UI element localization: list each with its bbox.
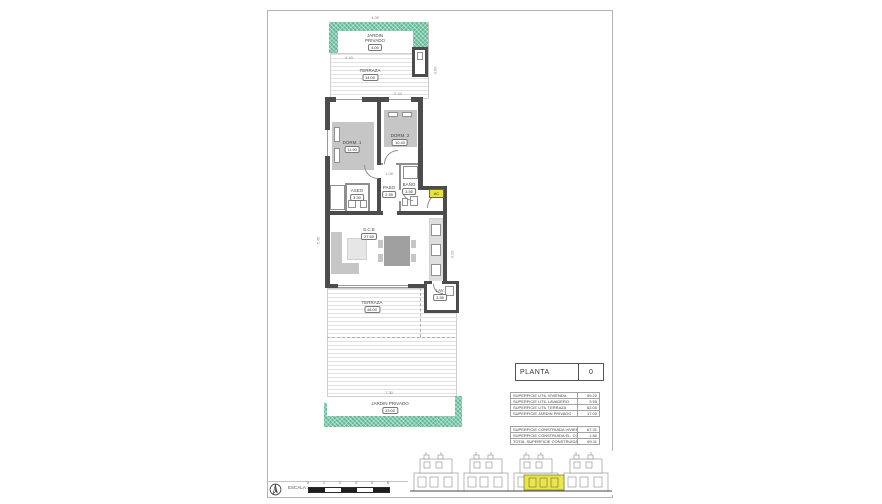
fridge: [431, 264, 441, 276]
dining-table: [384, 236, 410, 266]
table-row: SUPERFICIE UTIL LAVADERO 3.55: [510, 398, 600, 405]
surface-table-util: SUPERFICIE UTIL VIVIENDA 59.20 SUPERFICI…: [510, 393, 600, 417]
room-label-jardin-bottom: JARDIN PRIVADO 13.00: [371, 401, 408, 414]
scale-tick: 5: [387, 481, 389, 485]
room-label-aseo: ASEO 3.30: [350, 188, 364, 201]
table-cell-value: 69.11: [578, 439, 599, 444]
room-name: DORM. 2: [391, 133, 410, 138]
room-name: BAÑO: [403, 182, 416, 187]
table-row: TOTAL SUPERFICIE CONSTRUIDA 69.11: [510, 438, 600, 445]
dimension-text: 7.30: [385, 390, 393, 395]
planta-title-block: PLANTA 0: [515, 363, 604, 381]
window-glass-line: [336, 99, 362, 100]
surface-table-construida: SUPERFICIE CONSTRUIDA VIVIENDA 67.31 SUP…: [510, 427, 600, 445]
pergola-dashed-line: [327, 337, 455, 338]
room-name: ASEO: [351, 188, 364, 193]
window-glass-line: [338, 285, 408, 286]
dimension-text: 3.20: [449, 251, 454, 259]
scale-tick: 3: [355, 481, 357, 485]
kitchen-hob: [431, 244, 441, 256]
table-cell-label: TOTAL SUPERFICIE CONSTRUIDA: [511, 439, 578, 444]
room-label-lav: LAV. 3.55: [433, 288, 447, 301]
room-label-terraza-top: TERRAZA 14.00: [359, 68, 380, 81]
dimension-text: 4.05: [371, 15, 379, 20]
room-area-value: 3.55: [433, 294, 447, 301]
door-opening: [383, 211, 397, 215]
door-opening: [399, 190, 401, 201]
room-name: JARDIN PRIVADO: [360, 33, 390, 43]
dimension-text: 3.60: [432, 67, 437, 75]
scale-tick: 0: [307, 481, 309, 485]
table-cell-label: SUPERFICIE JARDIN PRIVADO: [511, 411, 578, 416]
bed-pillow: [334, 148, 340, 163]
bed-pillow: [402, 112, 412, 117]
table-row: SUPERFICIE CONSTRUIDA VIVIENDA 67.31: [510, 426, 600, 433]
scale-segment: [309, 488, 325, 492]
planta-number: 0: [578, 364, 603, 380]
room-label-jardin-top: JARDIN PRIVADO 4.00: [360, 33, 390, 51]
dorm1-wardrobe: [330, 185, 345, 210]
scale-tick: 1: [323, 481, 325, 485]
partition-line: [368, 183, 370, 211]
scale-label: ESCALA :: [288, 485, 308, 490]
room-name: DORM. 1: [343, 140, 362, 145]
scale-segment: [357, 488, 373, 492]
table-cell-value: 3.55: [578, 399, 599, 404]
chair: [411, 240, 416, 248]
aseo-sink: [348, 200, 356, 208]
partition-line: [399, 165, 401, 211]
dimension-text: 4.40: [345, 55, 353, 60]
table-cell-value: 59.20: [578, 393, 599, 398]
chair: [411, 254, 416, 262]
wall-segment: [424, 281, 427, 313]
room-area-value: 14.00: [362, 74, 378, 81]
site-elevation-drawing: [408, 451, 614, 495]
wall-segment: [325, 215, 330, 288]
floor-plan-sheet-page: { "title_block": { "label": "PLANTA", "n…: [0, 0, 882, 504]
dimension-text: 1.08: [385, 171, 393, 176]
table-cell-label: SUPERFICIE CONSTRUIDA EL. COMUNES: [511, 433, 578, 438]
scale-segment: [373, 488, 389, 492]
room-name: PASO: [383, 185, 395, 190]
room-label-dorm2: DORM. 2 10.40: [391, 133, 410, 146]
table-cell-value: 17.00: [578, 411, 599, 416]
scale-segment: [325, 488, 341, 492]
bed-pillow: [334, 127, 340, 142]
table-row: SUPERFICIE UTIL VIVIENDA 59.20: [510, 392, 600, 399]
room-label-terraza-bottom: TERRAZA 48.00: [361, 300, 382, 313]
wall-segment: [377, 102, 381, 211]
room-name: S.C.E: [363, 227, 375, 232]
table-row: SUPERFICIE JARDIN PRIVADO 17.00: [510, 410, 600, 417]
living-rug: [347, 238, 367, 260]
room-name: JARDIN PRIVADO: [371, 401, 408, 406]
window-glass-line: [389, 99, 411, 100]
window-glass-line: [338, 287, 408, 288]
wall-segment: [456, 281, 459, 313]
table-cell-label: SUPERFICIE UTIL VIVIENDA: [511, 393, 578, 398]
table-row: SUPERFICIE UTIL TERRAZA 62.00: [510, 404, 600, 411]
table-cell-value: 1.80: [578, 433, 599, 438]
pergola-dashed-line: [420, 288, 421, 337]
sofa: [331, 232, 342, 274]
room-label-dorm1: DORM. 1 11.90: [343, 140, 362, 153]
room-label-paso: PASO 2.55: [382, 185, 396, 198]
room-area-value: 3.55: [402, 188, 416, 195]
scale-segment: [341, 488, 357, 492]
room-area-value: 3.30: [350, 194, 364, 201]
wall-segment: [418, 97, 423, 190]
room-label-bano: BAÑO 3.55: [402, 182, 416, 195]
scale-bar: [308, 487, 390, 493]
dimension-text: 2.43: [394, 91, 402, 96]
scale-tick: 2: [339, 481, 341, 485]
wall-segment: [424, 310, 459, 313]
kitchen-sink: [431, 224, 441, 236]
sofa-seat: [342, 263, 359, 274]
room-area-value: 2.55: [382, 191, 396, 198]
table-cell-label: SUPERFICIE CONSTRUIDA VIVIENDA: [511, 427, 578, 432]
room-area-value: 10.40: [392, 139, 408, 146]
room-name: TERRAZA: [361, 300, 382, 305]
dimension-text: 5.45: [315, 237, 320, 245]
planta-label: PLANTA: [516, 364, 578, 380]
chair: [378, 254, 383, 262]
aseo-toilet: [360, 200, 367, 208]
plot-edge-line: [428, 22, 429, 97]
room-area-value: 48.00: [364, 306, 380, 313]
partition-line: [345, 183, 370, 185]
room-name: TERRAZA: [359, 68, 380, 73]
table-cell-value: 62.00: [578, 405, 599, 410]
chair: [378, 240, 383, 248]
window-glass-line: [327, 130, 328, 156]
bed-pillow: [388, 112, 398, 117]
scale-tick: 4: [371, 481, 373, 485]
table-cell-value: 67.31: [578, 427, 599, 432]
room-area-value: 11.90: [344, 146, 360, 153]
scale-tick-numbers: 0 1 2 3 4 5: [308, 481, 388, 486]
north-compass-icon: [269, 483, 282, 496]
shower: [403, 166, 418, 179]
table-cell-label: SUPERFICIE UTIL TERRAZA: [511, 405, 578, 410]
room-area-value: 27.50: [361, 233, 377, 240]
room-label-sce: S.C.E 27.50: [361, 227, 377, 240]
wall-segment: [443, 186, 447, 284]
room-area-value: 4.00: [368, 44, 382, 51]
shaft-inner-box: [417, 52, 423, 60]
partition-line: [345, 183, 347, 211]
ac-unit-highlight-label: AC: [429, 189, 444, 198]
room-name: LAV.: [435, 288, 444, 293]
room-area-value: 13.00: [382, 407, 398, 414]
table-row: SUPERFICIE CONSTRUIDA EL. COMUNES 1.80: [510, 432, 600, 439]
table-cell-label: SUPERFICIE UTIL LAVADERO: [511, 399, 578, 404]
